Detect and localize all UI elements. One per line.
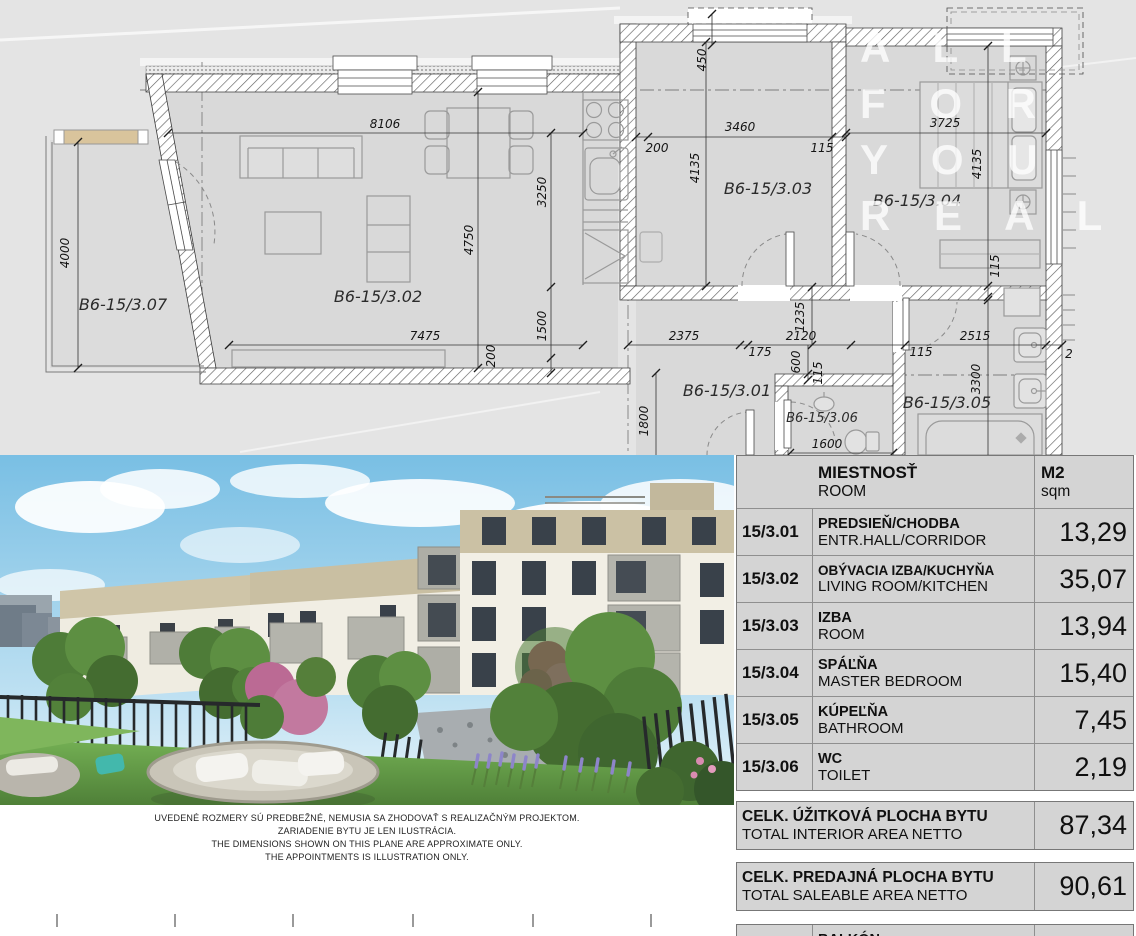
- room-name: IZBA ROOM: [812, 603, 1034, 649]
- room-code: 15/3.01: [737, 509, 812, 555]
- room-code: 15/3.04: [737, 650, 812, 696]
- dimension-label: 200: [646, 141, 669, 155]
- room-name: SPÁĽŇA MASTER BEDROOM: [812, 650, 1034, 696]
- dimension-label: 3460: [725, 120, 756, 134]
- header-area-col: M2 sqm: [1034, 456, 1133, 508]
- disclaimer-line: THE APPOINTMENTS IS ILLUSTRATION ONLY.: [0, 851, 734, 864]
- summary-area: 90,61: [1034, 863, 1133, 910]
- dimension-label: 2515: [960, 329, 991, 343]
- room-code: 15/3.03: [737, 603, 812, 649]
- table-summary-interior: CELK. ÚŽITKOVÁ PLOCHA BYTU TOTAL INTERIO…: [736, 801, 1134, 850]
- dimension-label: 1600: [812, 437, 843, 451]
- header-area-en: sqm: [1041, 483, 1128, 501]
- table-summary-saleable: CELK. PREDAJNÁ PLOCHA BYTU TOTAL SALEABL…: [736, 862, 1134, 911]
- floor-plan: 8106 4750 3250 1500 200 7475 4000 450 20…: [0, 0, 1136, 455]
- room-label-balcony: B6-15/3.07: [79, 295, 168, 314]
- header-area-sk: M2: [1041, 463, 1128, 483]
- dimension-label: 7475: [410, 329, 441, 343]
- room-name-sk: PREDSIEŇ/CHODBA: [818, 516, 1029, 532]
- table-row: 15/3.02 OBÝVACIA IZBA/KUCHYŇA LIVING ROO…: [737, 555, 1133, 602]
- room-area: 7,45: [1034, 697, 1133, 743]
- dimension-label: 450: [695, 48, 709, 71]
- dimension-label: 2: [1065, 347, 1073, 361]
- room-name-en: MASTER BEDROOM: [818, 673, 1029, 690]
- room-name: WC TOILET: [812, 744, 1034, 790]
- room-name-sk: BALKÓN: [818, 932, 1029, 936]
- table-row: 15/3.04 SPÁĽŇA MASTER BEDROOM 15,40: [737, 649, 1133, 696]
- room-name: OBÝVACIA IZBA/KUCHYŇA LIVING ROOM/KITCHE…: [812, 556, 1034, 602]
- table-row: 15/3.03 IZBA ROOM 13,94: [737, 602, 1133, 649]
- room-name: PREDSIEŇ/CHODBA ENTR.HALL/CORRIDOR: [812, 509, 1034, 555]
- table-balcony-block: 15/3.07 BALKÓN BALCONY 7,79: [736, 924, 1134, 936]
- watermark-line: A L L: [860, 24, 1043, 71]
- building-photo: [0, 455, 734, 805]
- table-gap: [736, 791, 1134, 801]
- room-name: BALKÓN BALCONY: [812, 925, 1034, 936]
- room-area: 2,19: [1034, 744, 1133, 790]
- room-name-sk: OBÝVACIA IZBA/KUCHYŇA: [818, 563, 1029, 578]
- dimension-label: 4135: [688, 153, 702, 184]
- table-main-block: MIESTNOSŤ ROOM M2 sqm 15/3.01 PREDSIEŇ/C…: [736, 455, 1134, 791]
- room-code: 15/3.06: [737, 744, 812, 790]
- summary-name: CELK. ÚŽITKOVÁ PLOCHA BYTU TOTAL INTERIO…: [737, 802, 1034, 849]
- brochure-page: 8106 4750 3250 1500 200 7475 4000 450 20…: [0, 0, 1136, 936]
- header-room-en: ROOM: [818, 483, 1029, 501]
- dimension-label: 115: [910, 345, 933, 359]
- watermark-line: Y O U: [860, 136, 1054, 183]
- summary-name: CELK. PREDAJNÁ PLOCHA BYTU TOTAL SALEABL…: [737, 863, 1034, 910]
- dimension-label: 1235: [793, 302, 807, 333]
- watermark-line: R E A L: [860, 192, 1118, 239]
- summary-name-en: TOTAL SALEABLE AREA NETTO: [742, 887, 1029, 904]
- disclaimer-line: ZARIADENIE BYTU JE LEN ILUSTRÁCIA.: [0, 825, 734, 838]
- dimension-label: 8106: [370, 117, 401, 131]
- dimension-label: 2375: [669, 329, 700, 343]
- room-code: 15/3.02: [737, 556, 812, 602]
- table-gap: [736, 850, 1134, 862]
- dimension-label: 175: [749, 345, 772, 359]
- room-area: 15,40: [1034, 650, 1133, 696]
- room-label-hall: B6-15/3.01: [683, 381, 771, 400]
- table-gap: [736, 911, 1134, 924]
- watermark-line: F O R: [860, 80, 1052, 127]
- room-name-en: BATHROOM: [818, 720, 1029, 737]
- summary-name-en: TOTAL INTERIOR AREA NETTO: [742, 826, 1029, 843]
- room-name-sk: IZBA: [818, 610, 1029, 626]
- disclaimer-line: THE DIMENSIONS SHOWN ON THIS PLANE ARE A…: [0, 838, 734, 851]
- room-name-sk: SPÁĽŇA: [818, 657, 1029, 673]
- room-area: 35,07: [1034, 556, 1133, 602]
- room-code: 15/3.07: [737, 925, 812, 936]
- dimension-label: 200: [484, 344, 498, 367]
- room-name: KÚPEĽŇA BATHROOM: [812, 697, 1034, 743]
- table-row: 15/3.07 BALKÓN BALCONY 7,79: [737, 925, 1133, 936]
- table-row: 15/3.01 PREDSIEŇ/CHODBA ENTR.HALL/CORRID…: [737, 508, 1133, 555]
- dimension-label: 3250: [535, 176, 549, 207]
- summary-name-sk: CELK. PREDAJNÁ PLOCHA BYTU: [742, 869, 1029, 887]
- ruler-tick: [412, 914, 414, 927]
- dimension-label: 1500: [535, 310, 549, 341]
- header-room-sk: MIESTNOSŤ: [818, 463, 1029, 483]
- ruler-tick: [174, 914, 176, 927]
- room-name-sk: WC: [818, 751, 1029, 767]
- summary-area: 87,34: [1034, 802, 1133, 849]
- room-label-room: B6-15/3.03: [724, 179, 812, 198]
- table-row: 15/3.05 KÚPEĽŇA BATHROOM 7,45: [737, 696, 1133, 743]
- room-name-en: TOILET: [818, 767, 1029, 784]
- dimension-label: 1800: [637, 405, 651, 436]
- table-row: 15/3.06 WC TOILET 2,19: [737, 743, 1133, 790]
- room-label-wc: B6-15/3.06: [786, 411, 858, 426]
- dimension-label: 115: [811, 141, 834, 155]
- room-name-en: ENTR.HALL/CORRIDOR: [818, 532, 1029, 549]
- dimension-label: 600: [789, 350, 803, 373]
- room-area: 7,79: [1034, 925, 1133, 936]
- dimension-label: 3300: [969, 363, 983, 394]
- ruler-tick: [532, 914, 534, 927]
- room-area: 13,29: [1034, 509, 1133, 555]
- ruler-tick: [292, 914, 294, 927]
- disclaimer-line: UVEDENÉ ROZMERY SÚ PREDBEŽNÉ, NEMUSIA SA…: [0, 812, 734, 825]
- room-name-en: ROOM: [818, 626, 1029, 643]
- room-label-living: B6-15/3.02: [334, 287, 422, 306]
- ruler-tick: [650, 914, 652, 927]
- table-header: MIESTNOSŤ ROOM M2 sqm: [737, 456, 1133, 508]
- dimension-label: 4000: [58, 237, 72, 268]
- ruler-tick: [56, 914, 58, 927]
- room-name-en: LIVING ROOM/KITCHEN: [818, 578, 1029, 595]
- header-room-col: MIESTNOSŤ ROOM: [737, 456, 1034, 508]
- summary-name-sk: CELK. ÚŽITKOVÁ PLOCHA BYTU: [742, 808, 1029, 826]
- room-label-bathroom: B6-15/3.05: [903, 393, 991, 412]
- disclaimer-text: UVEDENÉ ROZMERY SÚ PREDBEŽNÉ, NEMUSIA SA…: [0, 812, 734, 864]
- room-name-sk: KÚPEĽŇA: [818, 704, 1029, 720]
- garden-daybed: [148, 742, 378, 805]
- dimension-label: 115: [988, 255, 1002, 278]
- room-code: 15/3.05: [737, 697, 812, 743]
- dimension-label: 4750: [462, 224, 476, 255]
- room-area: 13,94: [1034, 603, 1133, 649]
- dimension-label: 115: [811, 362, 825, 385]
- room-area-table: MIESTNOSŤ ROOM M2 sqm 15/3.01 PREDSIEŇ/C…: [736, 455, 1134, 936]
